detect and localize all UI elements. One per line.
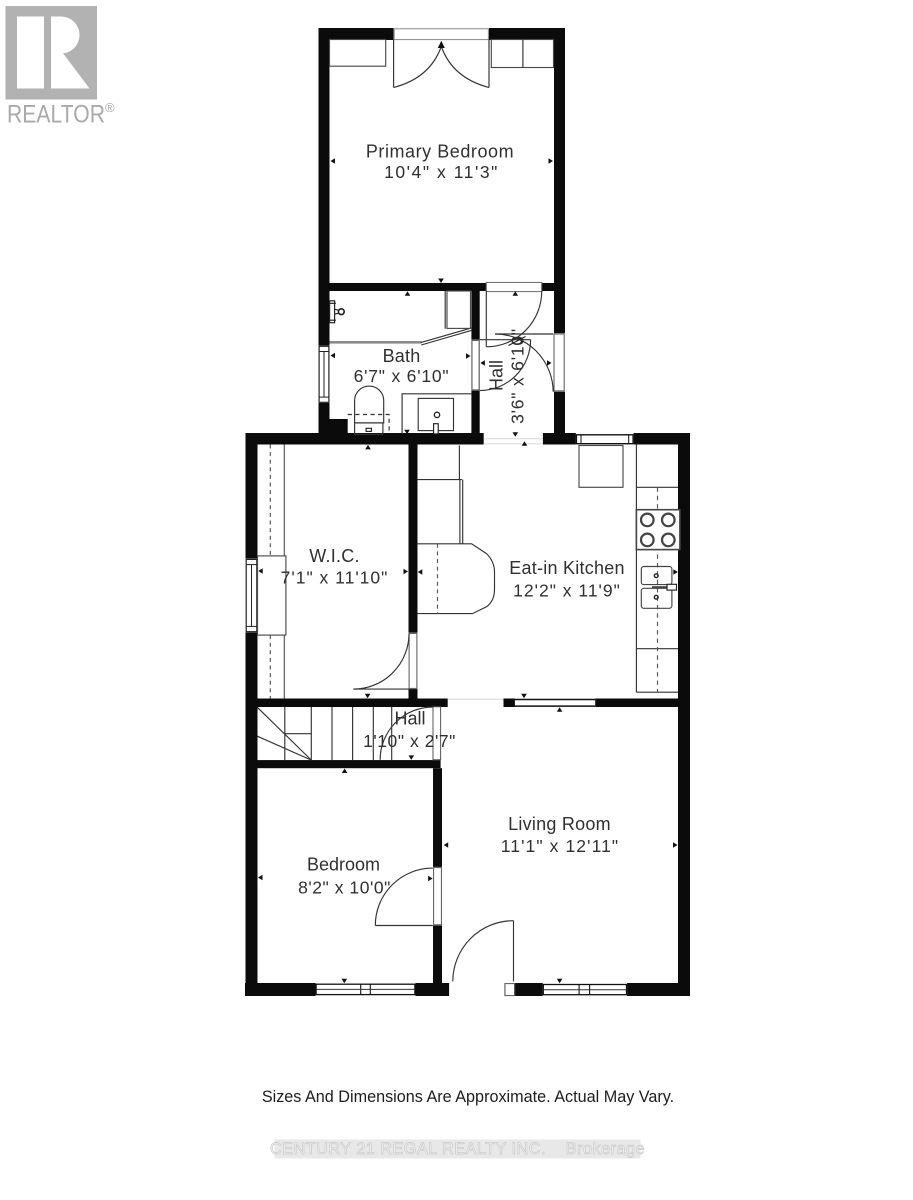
svg-text:Primary Bedroom: Primary Bedroom xyxy=(366,142,514,162)
svg-text:3'6" x 6'10": 3'6" x 6'10" xyxy=(508,328,528,424)
svg-text:11'1" x 12'11": 11'1" x 12'11" xyxy=(501,836,620,856)
svg-text:1'10" x 2'7": 1'10" x 2'7" xyxy=(363,731,456,751)
svg-text:Hall: Hall xyxy=(394,709,425,729)
svg-text:12'2" x 11'9": 12'2" x 11'9" xyxy=(513,581,621,601)
svg-text:Hall: Hall xyxy=(487,360,507,391)
svg-text:Bath: Bath xyxy=(383,346,421,366)
svg-text:®: ® xyxy=(105,100,115,115)
svg-text:7'1" x 11'10": 7'1" x 11'10" xyxy=(281,568,389,588)
svg-text:Bedroom: Bedroom xyxy=(307,855,380,875)
svg-text:Sizes And Dimensions Are Appro: Sizes And Dimensions Are Approximate. Ac… xyxy=(262,1088,674,1106)
svg-text:6'7" x 6'10": 6'7" x 6'10" xyxy=(354,366,450,386)
svg-text:CENTURY 21 REGAL REALTY INC.: CENTURY 21 REGAL REALTY INC. Brokerage xyxy=(270,1140,645,1158)
svg-text:REALTOR: REALTOR xyxy=(7,101,105,129)
svg-text:10'4" x 11'3": 10'4" x 11'3" xyxy=(384,162,499,182)
svg-text:W.I.C.: W.I.C. xyxy=(309,546,360,566)
svg-text:8'2" x 10'0": 8'2" x 10'0" xyxy=(298,878,391,898)
svg-text:Living Room: Living Room xyxy=(508,814,611,834)
svg-text:Eat-in Kitchen: Eat-in Kitchen xyxy=(509,558,625,578)
